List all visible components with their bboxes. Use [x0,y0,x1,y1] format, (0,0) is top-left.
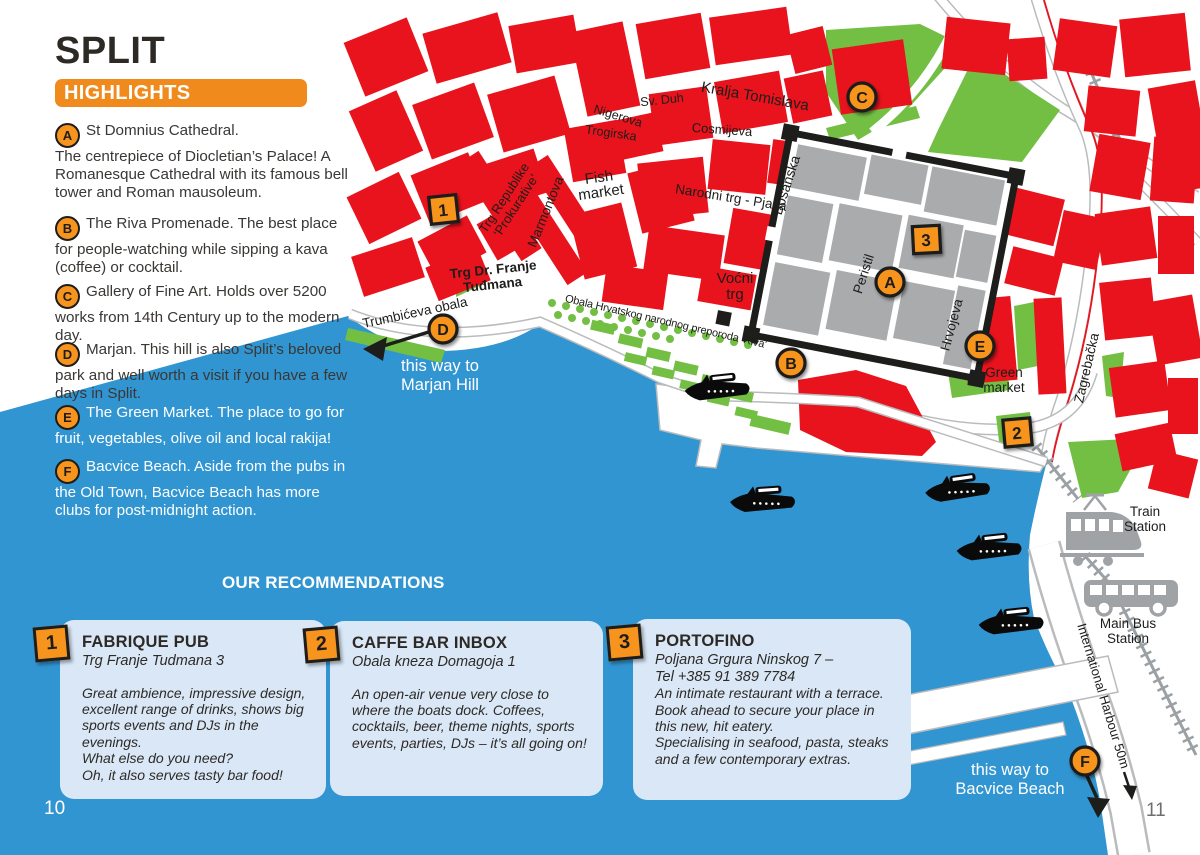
svg-text:2: 2 [1011,424,1022,444]
card-number-badge-1: 1 [33,625,71,663]
card-number-badge-2: 2 [303,626,341,664]
recommendation-card-fabrique-pub: 1 FABRIQUE PUB Trg Franje Tudmana 3 Grea… [60,620,326,799]
highlights-banner: HIGHLIGHTS [55,79,307,107]
card-description-1: Great ambience, impressive design, excel… [82,685,312,783]
place-label-green-market-line1: Green [985,365,1023,380]
recommendations-heading: OUR RECOMMENDATIONS [222,573,445,593]
highlight-item-c: CGallery of Fine Art. Holds over 5200 wo… [55,283,359,345]
bus-icon [1084,580,1178,615]
highlight-badge-c: C [55,284,80,309]
highlight-text-f: Bacvice Beach. Aside from the pubs in th… [55,458,345,519]
highlight-item-f: FBacvice Beach. Aside from the pubs in t… [55,458,359,520]
place-label-vocni-trg-line2: trg [726,286,744,303]
marker-f: F [1071,747,1099,775]
marker-a: A [876,268,904,296]
card-number-badge-3: 3 [606,624,644,662]
svg-text:E: E [975,339,986,356]
highlight-text-c: Gallery of Fine Art. Holds over 5200 wor… [55,283,339,344]
guidebook-page: Kralja Tomislava Sv. Duh Nigerova Trogir… [0,0,1200,855]
svg-text:D: D [437,322,449,339]
page-title: SPLIT [55,30,165,73]
direction-label-bacvice-line1: this way to [971,761,1049,779]
direction-label-bacvice-line2: Bacvice Beach [955,780,1064,798]
highlight-badge-b: B [55,216,80,241]
highlight-badge-a: A [55,123,80,148]
highlight-item-b: BThe Riva Promenade. The best place for … [55,215,359,277]
marker-2: 2 [1003,418,1032,447]
svg-text:A: A [884,275,896,292]
card-address-1: Trg Franje Tudmana 3 [82,653,312,670]
highlight-text-d: Marjan. This hill is also Split’s belove… [55,341,347,402]
place-label-vocni-trg-line1: Voćni [717,270,754,287]
svg-text:B: B [785,356,797,373]
highlight-badge-e: E [55,405,80,430]
svg-text:1: 1 [437,201,448,221]
card-title-1: FABRIQUE PUB [82,633,312,652]
svg-text:3: 3 [921,231,931,250]
highlight-text-b: The Riva Promenade. The best place for p… [55,215,337,276]
direction-label-marjan-line1: this way to [401,357,479,375]
highlight-badge-f: F [55,459,80,484]
marker-b: B [777,349,805,377]
card-description-3: An intimate restaurant with a terrace. B… [655,685,897,767]
place-label-green-market-line2: market [983,380,1025,395]
highlight-item-d: DMarjan. This hill is also Split’s belov… [55,341,359,403]
highlight-item-e: EThe Green Market. The place to go for f… [55,404,359,448]
place-label-train-station-line2: Station [1124,519,1166,534]
svg-text:F: F [1080,754,1090,771]
highlights-banner-label: HIGHLIGHTS [55,82,190,105]
card-address-3: Poljana Grgura Ninskog 7 – Tel +385 91 3… [655,652,897,685]
page-number-right: 11 [1146,800,1166,822]
place-label-train-station-line1: Train [1130,504,1160,519]
card-title-2: CAFFE BAR INBOX [352,634,589,653]
place-label-bus-station-line2: Station [1107,631,1149,646]
direction-label-marjan-line2: Marjan Hill [401,376,479,394]
marker-e: E [966,332,994,360]
highlight-text-a: St Domnius Cathedral. The centrepiece of… [55,122,348,201]
recommendation-card-portofino: 3 PORTOFINO Poljana Grgura Ninskog 7 – T… [633,619,911,800]
card-description-2: An open-air venue very close to where th… [352,686,589,752]
marker-c: C [848,83,876,111]
highlight-text-e: The Green Market. The place to go for fr… [55,404,344,447]
recommendation-card-caffe-bar-inbox: 2 CAFFE BAR INBOX Obala kneza Domagoja 1… [330,621,603,796]
highlight-item-a: ASt Domnius Cathedral. The centrepiece o… [55,122,359,201]
card-title-3: PORTOFINO [655,632,897,651]
marker-d: D [429,315,457,343]
place-label-fish-market-line2: market [577,181,626,204]
highlight-badge-d: D [55,342,80,367]
marker-1: 1 [429,195,459,225]
place-label-bus-station-line1: Main Bus [1100,616,1157,631]
page-number-left: 10 [44,798,65,820]
card-address-2: Obala kneza Domagoja 1 [352,654,589,671]
marker-3: 3 [912,225,940,253]
svg-text:C: C [856,90,868,107]
